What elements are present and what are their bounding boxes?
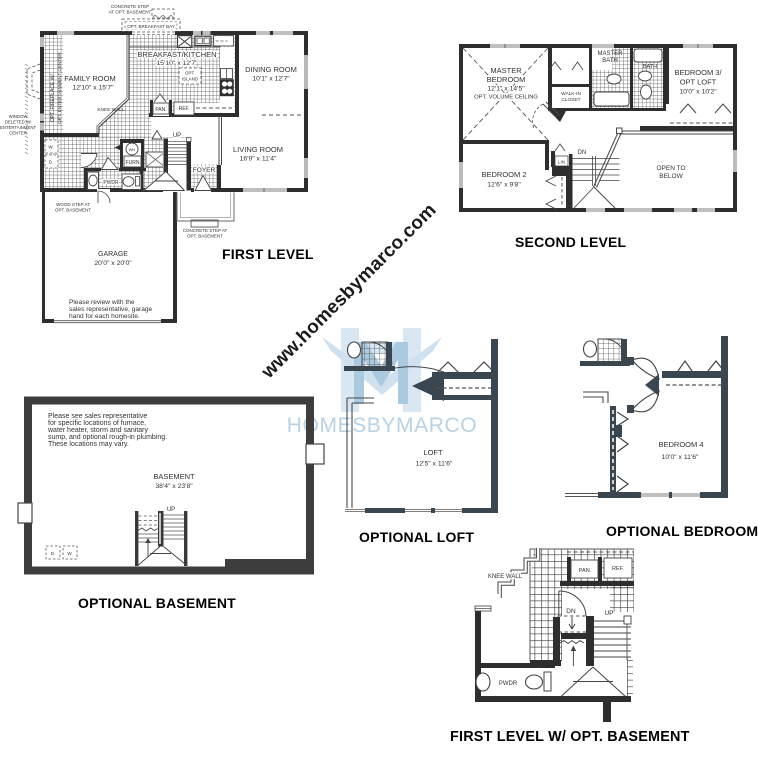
svg-text:hand for each homesite.: hand for each homesite. [69, 313, 140, 320]
svg-text:UP: UP [604, 610, 613, 617]
svg-text:REF.: REF. [612, 566, 624, 572]
svg-text:DINING ROOM: DINING ROOM [245, 65, 297, 74]
svg-text:KNEE WALL: KNEE WALL [97, 107, 125, 113]
svg-text:FURN: FURN [126, 160, 140, 166]
svg-text:DN: DN [578, 150, 587, 156]
svg-text:ENTERTAINMENT: ENTERTAINMENT [0, 125, 36, 130]
svg-text:LIN: LIN [558, 160, 565, 165]
svg-text:15'10" x 12'7": 15'10" x 12'7" [156, 60, 198, 67]
svg-text:CENTER: CENTER [9, 131, 27, 136]
svg-text:BELOW: BELOW [659, 173, 683, 180]
svg-text:sales representative, garage: sales representative, garage [69, 306, 153, 313]
svg-text:for specific locations of furn: for specific locations of furnace, [48, 420, 146, 427]
svg-text:WINDOW: WINDOW [9, 114, 29, 119]
svg-text:PWDR: PWDR [103, 180, 119, 186]
svg-text:OPTIONAL BEDROOM: OPTIONAL BEDROOM [606, 523, 758, 539]
svg-text:Please see sales representativ: Please see sales representative [48, 413, 147, 420]
svg-text:UP: UP [167, 507, 175, 513]
svg-text:DELETED W/: DELETED W/ [5, 120, 32, 125]
svg-text:LIVING ROOM: LIVING ROOM [233, 145, 283, 154]
svg-text:OPTIONAL LOFT: OPTIONAL LOFT [359, 529, 474, 545]
svg-text:12'1" x 14'5": 12'1" x 14'5" [487, 86, 525, 93]
svg-text:BREAKFAST/KITCHEN: BREAKFAST/KITCHEN [137, 50, 216, 59]
svg-text:OPT. BREAKFAST BAY: OPT. BREAKFAST BAY [127, 24, 175, 29]
svg-text:38'4" x 23'8": 38'4" x 23'8" [155, 483, 193, 490]
svg-text:MASTER: MASTER [490, 66, 522, 75]
svg-text:CONCRETE STEP AT: CONCRETE STEP AT [183, 228, 228, 233]
svg-text:OPT. ENTERTAINMENT CENTER: OPT. ENTERTAINMENT CENTER [57, 52, 62, 124]
svg-text:WH: WH [129, 147, 136, 152]
svg-text:OPT. BASEMENT: OPT. BASEMENT [55, 208, 91, 213]
svg-text:CLOSET: CLOSET [561, 97, 580, 103]
svg-text:sump, and optional rough-in pl: sump, and optional rough-in plumbing. [48, 434, 167, 441]
svg-text:OPT. VOLUME CEILING: OPT. VOLUME CEILING [474, 95, 538, 101]
svg-text:BEDROOM 4: BEDROOM 4 [658, 440, 703, 449]
svg-text:BATH: BATH [602, 58, 618, 64]
svg-text:KNEE WALL: KNEE WALL [488, 574, 523, 580]
svg-text:FIRST LEVEL W/ OPT. BASEMENT: FIRST LEVEL W/ OPT. BASEMENT [450, 729, 690, 745]
svg-text:AT OPT. BASEMENT: AT OPT. BASEMENT [109, 10, 152, 15]
svg-text:BEDROOM 2: BEDROOM 2 [481, 170, 526, 179]
svg-text:ISLAND: ISLAND [182, 77, 199, 82]
svg-text:BEDROOM: BEDROOM [487, 75, 526, 84]
svg-text:10'0" x 10'2": 10'0" x 10'2" [679, 89, 717, 96]
svg-text:BATH: BATH [643, 64, 657, 70]
svg-text:CONCRETE STEP: CONCRETE STEP [111, 4, 149, 9]
svg-text:UP: UP [173, 133, 181, 139]
svg-text:W.: W. [48, 145, 53, 150]
svg-text:BASEMENT: BASEMENT [153, 472, 195, 481]
svg-text:12'10" x 15'7": 12'10" x 15'7" [72, 85, 114, 92]
svg-text:MASTER: MASTER [597, 51, 623, 57]
svg-text:12'5" x 11'6": 12'5" x 11'6" [416, 461, 453, 468]
svg-text:W.: W. [67, 551, 72, 556]
svg-text:OPT. BASEMENT: OPT. BASEMENT [187, 234, 223, 239]
svg-text:HOMESBYMARCO: HOMESBYMARCO [287, 414, 477, 437]
svg-text:PAN.: PAN. [579, 568, 592, 574]
svg-text:OPEN TO: OPEN TO [656, 165, 685, 172]
svg-text:WALK-IN: WALK-IN [561, 91, 581, 97]
svg-text:OPT. FIREPLACE W/: OPT. FIREPLACE W/ [50, 74, 56, 122]
svg-text:These locations may vary.: These locations may vary. [48, 441, 129, 448]
svg-text:FOYER: FOYER [193, 167, 216, 174]
svg-text:12'6" x 9'8": 12'6" x 9'8" [487, 182, 521, 189]
svg-text:water heater, storm and sanita: water heater, storm and sanitary [47, 427, 148, 434]
svg-text:BEDROOM 3/: BEDROOM 3/ [674, 68, 722, 77]
svg-text:D.: D. [49, 160, 54, 165]
svg-text:10'1" x 12'7": 10'1" x 12'7" [252, 76, 290, 83]
svg-text:16'9" x 11'4": 16'9" x 11'4" [240, 156, 277, 163]
svg-text:10'0" x 11'6": 10'0" x 11'6" [662, 454, 699, 461]
svg-text:OPT LOFT: OPT LOFT [680, 78, 717, 87]
svg-text:DN: DN [566, 608, 576, 615]
svg-text:REF.: REF. [179, 106, 190, 112]
svg-text:Please review with the: Please review with the [69, 299, 135, 306]
svg-text:FIRST LEVEL: FIRST LEVEL [222, 246, 314, 262]
svg-text:GARAGE: GARAGE [98, 251, 128, 258]
svg-text:SECOND LEVEL: SECOND LEVEL [515, 234, 627, 250]
svg-text:LOFT: LOFT [423, 448, 443, 457]
svg-text:PAN.: PAN. [155, 107, 166, 113]
svg-text:FAMILY ROOM: FAMILY ROOM [64, 74, 115, 83]
svg-text:D.: D. [51, 551, 56, 556]
svg-text:PWDR: PWDR [499, 681, 518, 687]
svg-text:WOOD STEP AT: WOOD STEP AT [56, 202, 90, 207]
svg-text:OPT.: OPT. [185, 71, 195, 76]
svg-text:OPTIONAL BASEMENT: OPTIONAL BASEMENT [78, 595, 236, 611]
svg-text:20'0" x 20'0": 20'0" x 20'0" [94, 260, 132, 267]
